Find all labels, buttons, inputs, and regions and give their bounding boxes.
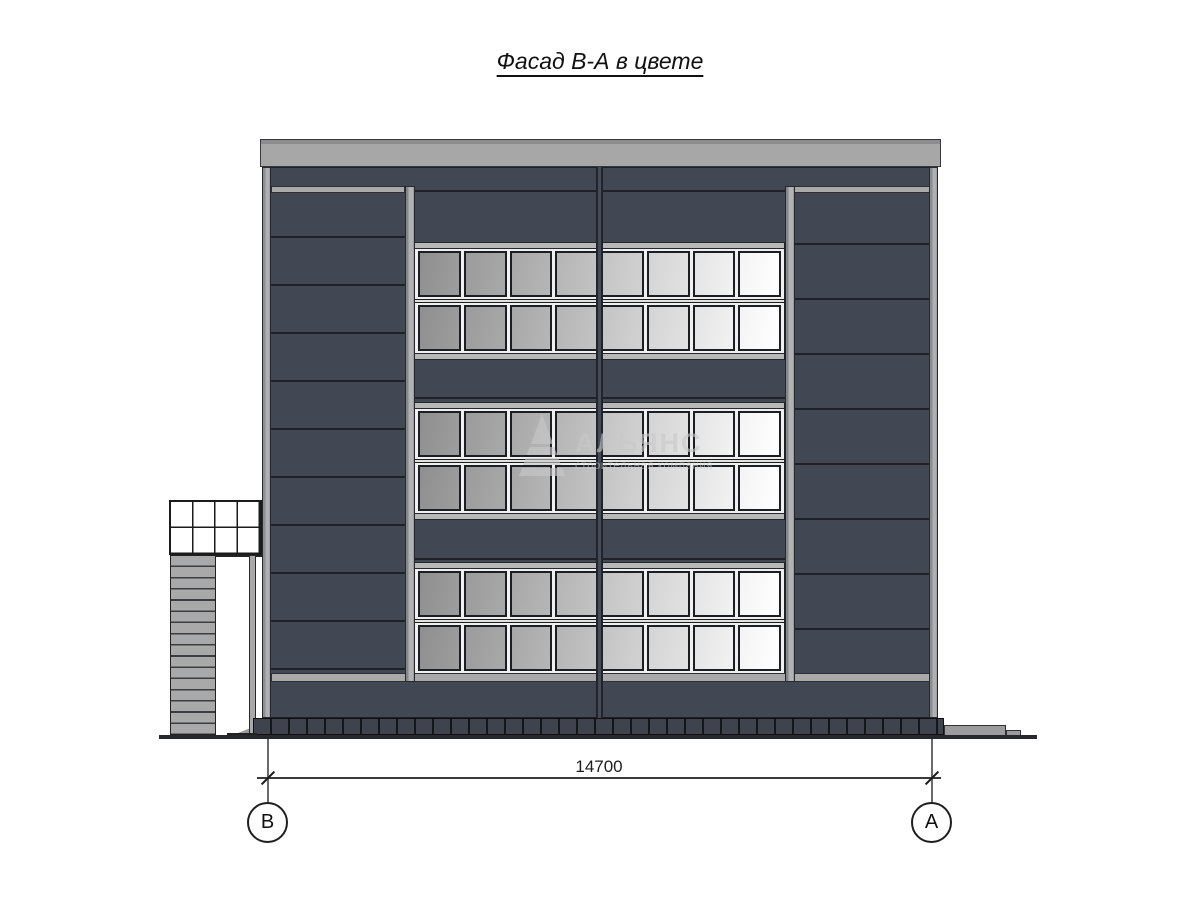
window-pane [418,625,461,671]
window-pane [510,305,553,351]
window-pane [693,571,736,617]
window-pane [555,465,598,511]
central-joint [596,167,603,718]
window-pane [601,625,644,671]
window-pane [738,465,781,511]
axis-label-a: А [925,811,938,834]
window-pane [601,465,644,511]
window-pane [601,251,644,297]
window-pane [464,305,507,351]
window-pane [555,251,598,297]
window-pane [555,411,598,457]
window-pane [693,305,736,351]
window-pane [693,625,736,671]
window-pane [693,251,736,297]
window-pane [738,625,781,671]
window-pane [647,305,690,351]
window-pane [464,251,507,297]
window-pane [647,411,690,457]
window-pane [464,571,507,617]
window-pane [510,251,553,297]
pilaster-left-center [405,186,415,682]
axis-marker-a: А [911,802,952,843]
dimension-line [257,777,941,779]
window-pane [510,465,553,511]
pilaster-right-center [785,186,795,682]
window-pane [601,571,644,617]
window-pane [738,251,781,297]
window-pane [418,251,461,297]
window-pane [601,305,644,351]
window-pane [555,625,598,671]
window-pane [555,305,598,351]
window-pane [555,571,598,617]
window-pane [647,465,690,511]
dimension-value: 14700 [257,757,941,777]
drawing-canvas: Фасад В-А в цвете АЛЬЯН [0,0,1200,900]
window-pane [464,465,507,511]
window-pane [464,625,507,671]
window-pane [510,625,553,671]
window-pane [738,411,781,457]
window-pane [510,411,553,457]
window-pane [464,411,507,457]
axis-label-b: В [261,811,274,834]
window-pane [601,411,644,457]
window-pane [693,411,736,457]
window-pane [647,571,690,617]
window-pane [510,571,553,617]
window-pane [647,251,690,297]
window-pane [693,465,736,511]
window-pane [418,465,461,511]
axis-marker-b: В [247,802,288,843]
window-pane [418,411,461,457]
window-pane [647,625,690,671]
window-pane [418,305,461,351]
window-pane [418,571,461,617]
window-pane [738,571,781,617]
window-pane [738,305,781,351]
